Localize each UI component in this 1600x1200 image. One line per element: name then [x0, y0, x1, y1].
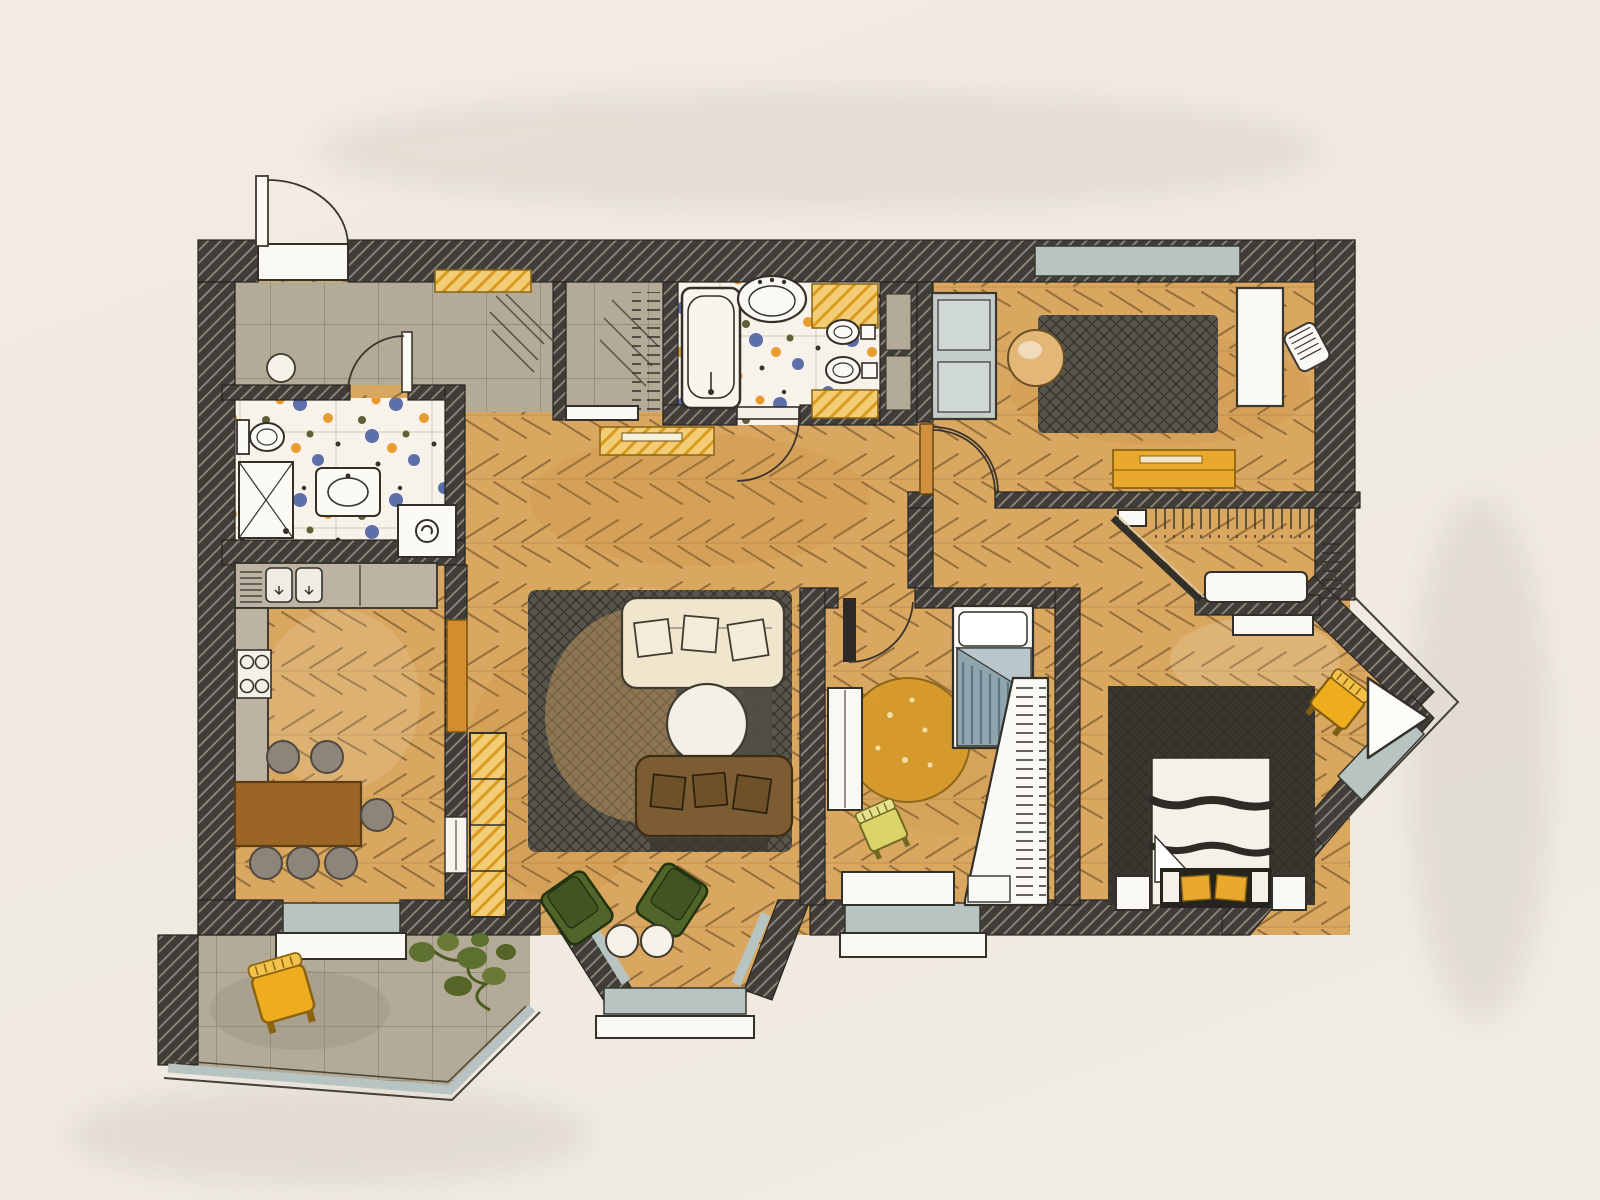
guest-bathroom-door-leaf [402, 332, 412, 392]
kitchen-window [283, 903, 400, 933]
kitchen-glass-door [445, 817, 467, 873]
brown-sofa [636, 756, 792, 836]
office-left-wall [917, 282, 933, 422]
washing-machine [398, 505, 456, 557]
bottom-wall-kitchen-a [198, 900, 283, 935]
bench-end-right [1252, 872, 1268, 902]
sofa-pillow [682, 616, 719, 653]
bench-pillow-1 [1181, 875, 1211, 901]
kitchen-tall-cabinet [447, 620, 467, 732]
bathroom-left-wall [663, 282, 678, 425]
closet-bench [1205, 572, 1307, 602]
office-cabinet [932, 293, 996, 419]
closet-hanging-rail-right [1322, 540, 1348, 602]
living-bay-glass-bottom [604, 988, 746, 1014]
kids-desk [828, 688, 862, 810]
sofa-pillow [650, 774, 685, 809]
office-desk [1237, 288, 1283, 406]
office-door-leaf [920, 424, 933, 494]
office-round-table [1008, 330, 1064, 386]
bathtub [682, 288, 740, 408]
sofa-pillow [693, 773, 728, 808]
cream-sofa [622, 598, 784, 688]
shower-stall [239, 462, 293, 538]
kids-pillow [959, 612, 1027, 646]
hall-wall-shelf [435, 270, 531, 292]
entrance-threshold [258, 244, 348, 280]
hall-closet-hanging-rail [632, 292, 660, 410]
pouf [267, 354, 295, 382]
kids-round-rug [846, 678, 970, 802]
office-rug [1038, 315, 1218, 433]
dining-table [235, 782, 361, 846]
side-table-2 [641, 925, 673, 957]
duct-niche-2 [886, 356, 911, 410]
entrance-door-leaf [256, 176, 268, 246]
hall-closet-left-wall [553, 282, 566, 420]
sofa-pillow [733, 775, 771, 813]
tv-bench [650, 838, 768, 851]
entrance-door-swing [268, 180, 348, 244]
table-highlight [1018, 341, 1042, 359]
bathroom-door-leaf [737, 407, 799, 419]
toilet-tank [237, 420, 249, 454]
floor-plan-photo [0, 0, 1600, 1200]
coffee-table [667, 684, 747, 764]
kids-bedroom-wall [1055, 588, 1080, 905]
kids-left-wall [800, 588, 825, 905]
guest-washbasin [316, 468, 380, 516]
hall-console-slot [622, 433, 682, 441]
kids-window [845, 903, 980, 933]
bedroom-dresser [1233, 615, 1313, 635]
side-table-1 [606, 925, 638, 957]
hall-closet-sill [566, 406, 638, 420]
left-wall [198, 282, 235, 935]
office-window [1035, 246, 1240, 276]
entry-partition-a [222, 385, 350, 400]
nightstand-right [1272, 876, 1306, 910]
bathroom-cabinet-bottom [812, 390, 878, 418]
balcony-left-wall [158, 935, 198, 1065]
cooktop [237, 650, 271, 698]
top-wall-left [198, 240, 258, 282]
bathroom-washbasin [738, 276, 806, 322]
living-bay-sill [596, 1016, 754, 1038]
kids-door-leaf [843, 598, 856, 662]
toilet-bowl [250, 423, 284, 451]
closet-hanging-rail-top [1150, 508, 1322, 538]
bench-end-left [1163, 872, 1179, 902]
corridor-wall-b [995, 492, 1360, 508]
duct-niche-1 [886, 294, 911, 350]
vestibule-left-wall [908, 508, 933, 588]
kids-window-sill [840, 933, 986, 957]
office-sideboard [1113, 450, 1235, 488]
bench-pillow-2 [1215, 875, 1247, 902]
sofa-pillow [634, 619, 672, 657]
bookshelf [470, 733, 506, 917]
kids-cabinet [842, 872, 954, 905]
sofa-pillow [727, 619, 768, 660]
floor-plan-drawing [0, 0, 1600, 1200]
nightstand-left [1116, 876, 1150, 910]
